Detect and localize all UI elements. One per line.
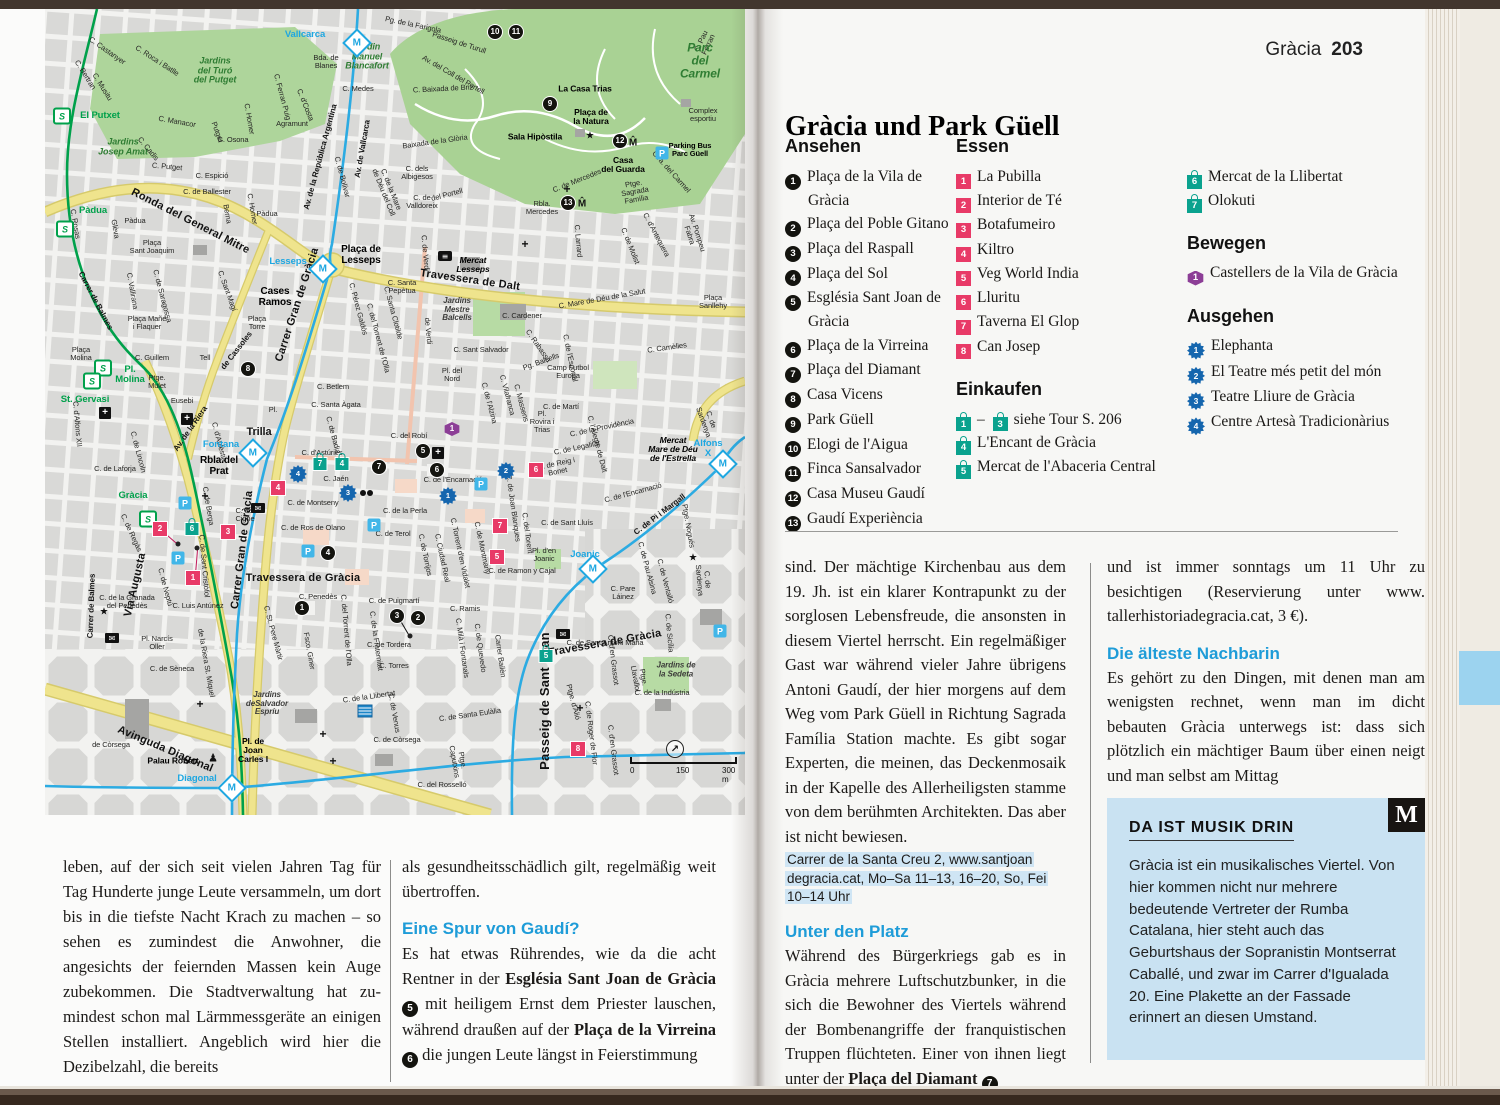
map-label: Sala Hipòstila [508, 132, 562, 141]
list-item: 1Castellers de la Vila de Gràcia [1187, 262, 1400, 285]
map-label: Parking Bus Parc Güell [669, 142, 712, 158]
column-divider [390, 860, 391, 1082]
listing-column: 6Mercat de la Llibertat7OlokutiBewegen1C… [1187, 137, 1400, 456]
star-icon: ★ [689, 553, 698, 564]
list-item: 4L'Encant de Gràcia [956, 432, 1188, 455]
listing-section: Essen1La Pubilla2Interior de Té3Botafume… [956, 137, 1188, 359]
paragraph: Es gehört zu den Dingen, mit denen man a… [1107, 666, 1425, 789]
dot-icon [176, 542, 181, 547]
inline-sight-badge: 6 [402, 1052, 418, 1068]
hospital-icon: + [181, 413, 193, 425]
map-marker-sight: 12 [613, 134, 627, 148]
map-label: Pl. de Joan Carles I [238, 737, 268, 765]
map-label: Plaça de la Natura [573, 108, 608, 126]
map-label: C. Jaén [323, 475, 348, 483]
map-label: Complex esportiu [689, 107, 718, 123]
map-label: C. dels Albigesos [401, 165, 433, 181]
map-label: Agramunt [276, 120, 308, 128]
bold-text: Plaça del Diamant [848, 1069, 977, 1088]
map-label: C. Guillem [135, 354, 169, 362]
chapter-name: Gràcia [1265, 39, 1321, 60]
map-label: C. Cardener [502, 312, 542, 320]
map-label: St. Gervasi [61, 395, 110, 405]
map-label: Pl. Rovira i Trias [530, 410, 555, 434]
map-marker-sight: 9 [543, 97, 557, 111]
map-label: C. de Sant Lluís [541, 519, 593, 527]
list-item: 8Casa Vicens [785, 384, 957, 408]
map-marker-food: 2 [153, 522, 167, 536]
sight-badge: 9 [785, 417, 801, 433]
map-marker-sight: 11 [509, 25, 523, 39]
listing-section: Einkaufen1– 3siehe Tour S. 2064L'Encant … [956, 380, 1188, 479]
sight-badge: 2 [785, 221, 801, 237]
map-marker-food: 5 [490, 550, 504, 564]
food-badge: 6 [956, 295, 971, 310]
dot-icon [408, 634, 413, 639]
map-marker-sight: 8 [241, 362, 255, 376]
fgc-icon: S [53, 108, 71, 125]
page-left: C. CastanyerC. BertranC. MusituC. Roca i… [0, 9, 757, 1086]
horizontal-rule [785, 531, 1398, 532]
map-label: C. de Martí [543, 403, 579, 411]
list-item-label: Plaça del Sol [807, 265, 888, 282]
list-item: 10Elogi de l'Aigua [785, 434, 957, 458]
inline-sight-badge: 5 [402, 1001, 418, 1017]
left-page-column-1: leben, auf der sich seit vielen Jahren T… [63, 854, 381, 1081]
map-label: Plaça Molina [70, 346, 92, 362]
page-stack-right [1425, 9, 1460, 1086]
listing-section: 6Mercat de la Llibertat7Olokuti [1187, 164, 1400, 213]
map-label: Trilla [246, 427, 271, 439]
map-label: Palau Robert [147, 756, 198, 765]
night-badge: 1 [1187, 342, 1205, 360]
map-label: Pl. [269, 406, 277, 414]
paragraph: leben, auf der sich seit vielen Jahren T… [63, 854, 381, 1079]
map-label: Pàdua [79, 206, 107, 216]
shop-badge: 4 [956, 441, 971, 455]
bookmark-tab [1459, 651, 1500, 705]
food-badge: 3 [956, 223, 971, 238]
music-info-box: M DA IST MUSIK DRIN Gràcia ist ein musik… [1107, 798, 1425, 1060]
star-icon: ★ [586, 131, 595, 142]
section-heading: Ansehen [785, 137, 957, 157]
list-item-label: Castellers de la Vila de Gràcia [1210, 264, 1398, 281]
list-item-label: Elogi de l'Aigua [807, 436, 908, 453]
list-item: 8Can Josep [956, 336, 1188, 359]
night-badge: 3 [1187, 392, 1205, 410]
guidebook-spread: C. CastanyerC. BertranC. MusituC. Roca i… [0, 0, 1500, 1105]
list-item-label: Can Josep [977, 338, 1040, 355]
map-label: C. de Montseny [287, 499, 338, 507]
list-item: 5Mercat de l'Abaceria Central [956, 456, 1188, 479]
food-badge: 5 [956, 271, 971, 286]
paragraph: Während des Bürgerkriegs gab es in Gràci… [785, 944, 1066, 1092]
list-item: 3Botafumeiro [956, 214, 1188, 237]
list-item-label: Park Güell [807, 411, 874, 428]
food-badge: 1 [956, 174, 971, 189]
map-label: Gràcia [119, 491, 148, 501]
food-badge: 4 [956, 247, 971, 262]
map-label: Rbla. Mercedes [526, 200, 558, 216]
page-header: Gràcia203 [1265, 39, 1363, 61]
list-item: 1Elephanta [1187, 335, 1400, 359]
map-label: Plaça Mañé i Flaquer [128, 315, 167, 331]
map-label: Travessera de Gràcia [246, 573, 361, 585]
map-label: C. Penedès [299, 593, 337, 601]
food-badge: 2 [956, 198, 971, 213]
parking-icon: P [714, 625, 727, 638]
map-label: Mercat Mare de Déu de l'Estrella [648, 436, 697, 464]
monument-icon: M̂ [629, 138, 637, 149]
map-label: Tell [200, 354, 211, 362]
map-marker-sight: 10 [488, 25, 502, 39]
map-marker-food: 8 [571, 742, 585, 756]
night-badge: 4 [1187, 417, 1205, 435]
listing-column: Essen1La Pubilla2Interior de Té3Botafume… [956, 137, 1188, 500]
mail-icon: ✉ [105, 633, 119, 643]
map-marker-shop: 7 [314, 458, 327, 470]
list-item-label: siehe Tour S. 206 [1014, 411, 1122, 428]
list-item: 1La Pubilla [956, 166, 1188, 189]
contact-info: Carrer de la Santa Creu 2, www.santjoan … [785, 851, 1066, 907]
compass-icon: ↗ [666, 740, 684, 758]
list-item: 9Park Güell [785, 409, 957, 433]
scale-line [630, 757, 737, 764]
shop-badge: 5 [956, 465, 971, 479]
map-label: C. de Còrsega [373, 736, 420, 744]
map-label: Parc del Carmel [678, 42, 723, 81]
map-label: C. Espició [196, 172, 229, 180]
list-item: 7Taverna El Glop [956, 311, 1188, 334]
paragraph: Es hat etwas Rührendes, wie da die acht … [402, 941, 716, 1068]
monument-icon: M̂ [578, 199, 586, 210]
church-icon: + [329, 754, 336, 768]
list-item-label: Finca Sansalvador [807, 460, 921, 477]
left-page-column-2: als gesundheitsschädlich gilt, regelmä­ß… [402, 854, 716, 1070]
list-item-label: L'Encant de Gràcia [977, 434, 1096, 451]
fgc-icon: S [56, 221, 74, 238]
article-column-right: und ist immer sonntags um 11 Uhr zu besi… [1107, 555, 1425, 790]
parking-icon: P [368, 519, 381, 532]
list-item-label: Taverna El Glop [977, 313, 1079, 330]
scale-label: 300 m [722, 766, 737, 784]
list-item: 6Plaça de la Virreina [785, 335, 957, 359]
section-heading: Ausgehen [1187, 307, 1400, 327]
gracia-map: C. CastanyerC. BertranC. MusituC. Roca i… [45, 9, 745, 815]
map-label: C. Pare Láinez [611, 585, 636, 601]
map-label: Pàdua [124, 217, 145, 225]
map-label: C. Osona [218, 136, 249, 144]
list-item: 2El Teatre més petit del món [1187, 361, 1400, 385]
map-scale-bar: 0150300 m [630, 757, 737, 764]
masks-icon [360, 490, 366, 496]
sight-badge: 4 [785, 270, 801, 286]
list-item-label: Kiltro [977, 241, 1014, 258]
section-heading: Essen [956, 137, 1188, 157]
map-label: Plaça de Lesseps [341, 245, 381, 267]
scale-label: 150 [676, 766, 689, 775]
shop-badge: 7 [1187, 199, 1202, 213]
star-icon: ★ [100, 607, 109, 618]
church-icon: + [319, 727, 326, 741]
map-label: Pl. Molina [115, 365, 144, 386]
parking-icon: P [179, 497, 192, 510]
list-item: 1– 3siehe Tour S. 206 [956, 409, 1188, 432]
map-label: Jardins Mestre Balcells [442, 297, 471, 323]
list-item-label: Plaça del Diamant [807, 361, 921, 378]
map-label: C. Betlem [317, 383, 349, 391]
list-item: 6Lluritu [956, 287, 1188, 310]
map-label: C. de Sant Antoni Maria [567, 639, 644, 647]
map-marker-sight: 1 [295, 601, 309, 615]
list-item-label: Gaudí Experiència [807, 510, 923, 527]
sight-badge: 1 [785, 174, 801, 190]
range-dash: – [977, 411, 989, 428]
page-right: Gràcia203 Gràcia und Park Güell Ansehen1… [757, 9, 1425, 1086]
bold-text: Plaça de la Virreina [574, 1020, 716, 1039]
map-label: El Putxet [80, 111, 120, 121]
map-marker-sight: 2 [411, 611, 425, 625]
map-marker-food: 7 [493, 519, 507, 533]
parking-icon: P [172, 552, 185, 565]
list-item: 4Kiltro [956, 239, 1188, 262]
list-item-label: Mercat de la Llibertat [1208, 168, 1343, 185]
list-item-label: Plaça de la Virreina [807, 337, 928, 354]
statue-icon: ♟ [208, 752, 218, 765]
map-label: Plaça Sanllehy [699, 294, 727, 310]
section-heading: Bewegen [1187, 234, 1400, 254]
map-label: Jardins deSalvador Espríu [246, 691, 288, 717]
map-label: de Còrsega [92, 741, 130, 749]
book-cover-edge-bottom [0, 1086, 1500, 1105]
map-marker-sight: 4 [321, 546, 335, 560]
map-label: Fontana [203, 440, 239, 450]
market-icon [358, 705, 373, 718]
box-text: Gràcia ist ein musikalisches Viertel. Vo… [1129, 855, 1403, 1029]
church-icon: + [521, 237, 528, 251]
map-label: C. de Terol [375, 530, 410, 538]
list-item-label: Veg World India [977, 265, 1079, 282]
list-item: 1Plaça de la Vila de Gràcia [785, 166, 957, 212]
map-label: Pl. Narcís Oller [141, 635, 173, 651]
list-item: 2Interior de Té [956, 190, 1188, 213]
map-label: C. de Sèneca [150, 665, 194, 673]
scale-label: 0 [630, 766, 634, 775]
list-item-label: La Pubilla [977, 168, 1041, 185]
list-item-label: Plaça del Raspall [807, 240, 914, 257]
map-label: C. del Robí [391, 432, 427, 440]
sight-badge: 12 [785, 491, 801, 507]
list-item-label: El Teatre més petit del món [1211, 363, 1381, 380]
shop-badge: 6 [1187, 175, 1202, 189]
list-item: 6Mercat de la Llibertat [1187, 166, 1400, 189]
highlighted-text: Carrer de la Santa Creu 2, www.santjoan … [785, 852, 1048, 904]
church-icon: + [201, 489, 208, 503]
map-label: de Verdi [423, 317, 433, 344]
box-title: DA IST MUSIK DRIN [1129, 818, 1294, 841]
map-label: Eusebi [171, 397, 193, 405]
map-label: C. de la Indústria [635, 689, 690, 697]
sight-badge: 3 [785, 246, 801, 262]
list-item: 13Gaudí Experiència [785, 508, 957, 532]
map-label: Camp Futbol Europa [547, 364, 589, 380]
list-item-label: Església Sant Joan de Gràcia [807, 289, 941, 330]
book-icon: ≡ [438, 251, 452, 261]
map-label: Plaça Sant Joaquim [130, 239, 175, 255]
map-label: Lesseps [269, 257, 306, 267]
sight-badge: 7 [785, 367, 801, 383]
list-item: 11Finca Sansalvador [785, 458, 957, 482]
list-item-label: Lluritu [977, 289, 1020, 306]
article-subhead: Die älteste Nachbarin [1107, 643, 1425, 664]
book-edge-right [1460, 9, 1500, 1086]
map-label: Ptge. Mulet [148, 374, 166, 390]
night-badge: 2 [1187, 367, 1205, 385]
list-item: 2Plaça del Poble Gitano [785, 213, 957, 237]
mail-icon: ✉ [251, 503, 265, 513]
sight-badge: 6 [785, 342, 801, 358]
map-marker-food: 4 [271, 481, 285, 495]
church-icon: + [576, 701, 583, 715]
map-label: C. de Ramon y Cajal [488, 567, 555, 575]
listing-column: Ansehen1Plaça de la Vila de Gràcia2Plaça… [785, 137, 957, 553]
map-label: C. de Verdi [419, 235, 430, 272]
map-marker-sight: 7 [372, 460, 386, 474]
parking-icon: P [656, 147, 669, 160]
list-item-label: Interior de Té [977, 192, 1062, 209]
map-label: Jardins de la Sedeta [656, 661, 695, 678]
map-marker-sight: 13 [561, 196, 575, 210]
sight-badge: 5 [785, 295, 801, 311]
map-marker-sight: 6 [430, 463, 444, 477]
map-marker-food: 1 [186, 571, 200, 585]
article-column-left: sind. Der mächtige Kirchenbau aus dem 19… [785, 555, 1066, 1094]
food-badge: 7 [956, 320, 971, 335]
map-label: Bda. de Blanes [313, 54, 338, 70]
map-label: Jardins del Turó del Putget [194, 56, 237, 85]
list-item-label: Casa Museu Gaudí [807, 485, 925, 502]
publisher-logo: M [1388, 798, 1425, 832]
map-label: C. de Laforja [94, 465, 136, 473]
move-badge: 1 [1187, 271, 1204, 286]
map-marker-shop: 5 [540, 650, 553, 662]
sight-badge: 11 [785, 466, 801, 482]
map-marker-shop: 4 [336, 458, 349, 470]
bold-text: Església Sant Joan de Gràcia [505, 969, 716, 988]
map-label: Vallcarca [285, 30, 325, 40]
shop-badge: 3 [993, 417, 1008, 431]
list-item: 5Església Sant Joan de Gràcia [785, 287, 957, 333]
list-item-label: Casa Vicens [807, 386, 883, 403]
list-item-label: Mercat de l'Abaceria Central [977, 458, 1156, 475]
list-item: 3Plaça del Raspall [785, 238, 957, 262]
article-subhead: Eine Spur von Gaudí? [402, 918, 716, 939]
food-badge: 8 [956, 344, 971, 359]
paragraph: und ist immer sonntags um 11 Uhr zu besi… [1107, 555, 1425, 629]
list-item-label: Teatre Lliure de Gràcia [1211, 388, 1355, 405]
map-label: Pl. d'en Joanic [532, 547, 556, 563]
listing-section: Bewegen1Castellers de la Vila de Gràcia [1187, 234, 1400, 286]
map-label: C. Luis Antúnez [172, 602, 223, 610]
map-label: C. de Ballester [183, 188, 231, 196]
map-marker-sight: 5 [416, 444, 430, 458]
parking-icon: P [475, 478, 488, 491]
map-label: Pàdua [256, 210, 277, 218]
map-label: Mercat Lesseps [456, 256, 489, 274]
sight-badge: 10 [785, 441, 801, 457]
list-item-label: Plaça del Poble Gitano [807, 215, 949, 232]
map-label: Diagonal [177, 774, 216, 784]
map-label: C. de Tordera [367, 641, 411, 649]
list-item: 12Casa Museu Gaudí [785, 483, 957, 507]
map-label: C. Sant Salvador [453, 346, 508, 354]
hospital-icon: + [99, 407, 111, 419]
map-label: Ptge. Sagrada Família [619, 178, 650, 207]
map-marker-food: 6 [529, 463, 543, 477]
list-item: 4Plaça del Sol [785, 263, 957, 287]
section-heading: Einkaufen [956, 380, 1188, 400]
map-label: Casa del Guarda [601, 156, 644, 174]
map-marker-food: 3 [221, 525, 235, 539]
list-item-label: Plaça de la Vila de Gràcia [807, 168, 922, 209]
map-marker-sight: 3 [390, 609, 404, 623]
listing-section: Ansehen1Plaça de la Vila de Gràcia2Plaça… [785, 137, 957, 532]
map-label: C. Santa Àgata [311, 401, 360, 409]
map-label: Cases Ramos [259, 287, 292, 309]
map-label: C. de Puigmartí [369, 597, 420, 605]
church-icon: + [196, 697, 203, 711]
list-item: 7Plaça del Diamant [785, 359, 957, 383]
hospital-icon: + [432, 447, 444, 459]
sight-badge: 13 [785, 516, 801, 532]
list-item: 5Veg World India [956, 263, 1188, 286]
dot-icon [195, 546, 200, 551]
article-subhead: Unter den Platz [785, 921, 1066, 942]
list-item-label: Centre Artesà Tradicionàrius [1211, 413, 1389, 430]
list-item-label: Elephanta [1211, 337, 1273, 354]
list-item-label: Botafumeiro [977, 216, 1055, 233]
map-label: C. Torres [379, 662, 408, 670]
list-item: 4Centre Artesà Tradicionàrius [1187, 411, 1400, 435]
map-label: Pl. del Nord [442, 367, 462, 383]
map-label: C. de la Perla [383, 507, 427, 515]
page-number: 203 [1331, 39, 1363, 60]
mail-icon: ✉ [556, 629, 570, 639]
listing-section: Ausgehen1Elephanta2El Teatre més petit d… [1187, 307, 1400, 436]
map-label: C. del Rosselló [418, 781, 467, 789]
map-label: C. de Ros de Olano [281, 524, 345, 532]
map-label: C. Medes [342, 85, 373, 93]
column-divider [1090, 563, 1091, 1063]
map-label: C. Ramis [450, 605, 480, 613]
church-icon: + [563, 182, 570, 196]
parking-icon: P [302, 545, 315, 558]
list-item-label: Olokuti [1208, 192, 1255, 209]
book-cover-edge-top [0, 0, 1500, 9]
shop-badge: 1 [956, 417, 971, 431]
paragraph: sind. Der mächtige Kirchenbau aus dem 19… [785, 555, 1066, 849]
list-item: 3Teatre Lliure de Gràcia [1187, 386, 1400, 410]
fgc-icon: S [83, 373, 101, 390]
paragraph: als gesundheitsschädlich gilt, regelmä­ß… [402, 854, 716, 904]
map-marker-shop: 6 [186, 523, 199, 535]
list-item: 7Olokuti [1187, 190, 1400, 213]
map-label: Plaça Torre [248, 315, 266, 331]
sight-badge: 8 [785, 392, 801, 408]
map-label: La Casa Trias [558, 84, 612, 93]
map-label: C. Larrard [573, 224, 584, 257]
map-label: Rbla.del Prat [200, 456, 238, 478]
